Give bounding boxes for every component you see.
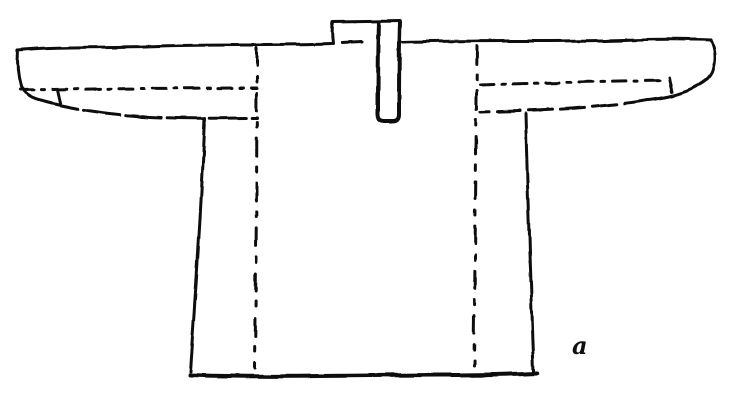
scanned-figure-page: a bbox=[0, 0, 738, 418]
right-sleeve-bottom-curve bbox=[648, 79, 708, 100]
collar-outline bbox=[332, 21, 400, 44]
left-sleeve-tip-edge bbox=[18, 50, 43, 101]
right-fold-tick-mark bbox=[669, 77, 672, 92]
collar-seam-dash bbox=[342, 42, 361, 43]
left-sleeve-top-line bbox=[18, 44, 331, 50]
tunic-line-drawing: a bbox=[0, 0, 738, 418]
figure-label: a bbox=[572, 331, 588, 360]
placket-strip bbox=[378, 22, 400, 121]
left-body-edge bbox=[190, 118, 205, 371]
hem-line bbox=[189, 373, 537, 376]
left-sleeve-bottom-curve bbox=[43, 101, 257, 118]
right-seam-dashed-line bbox=[474, 46, 477, 366]
left-seam-dashed-line bbox=[255, 48, 257, 368]
right-sleeve-top-line bbox=[403, 39, 711, 42]
right-sleeve-tip-edge bbox=[708, 40, 715, 79]
tunic-ink-lines bbox=[18, 21, 715, 376]
right-sleeve-bottom-dashed bbox=[480, 100, 648, 112]
right-sleeve-fold-line bbox=[480, 80, 666, 85]
right-body-edge bbox=[526, 114, 534, 372]
left-fold-tick-mark bbox=[57, 90, 60, 103]
